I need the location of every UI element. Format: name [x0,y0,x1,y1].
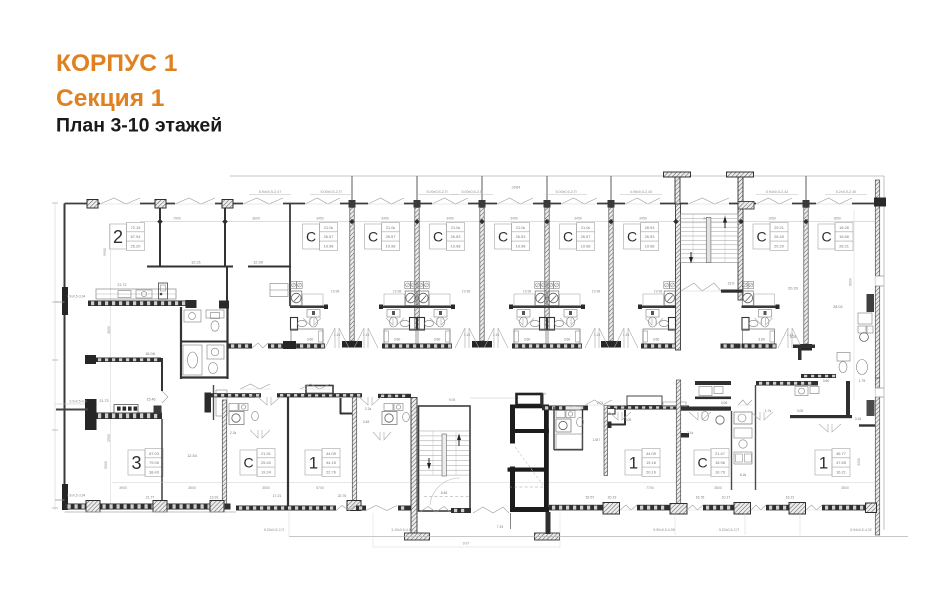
svg-text:3.60: 3.60 [434,338,441,342]
svg-text:5.94х0,5-2,42: 5.94х0,5-2,42 [766,190,789,194]
svg-text:2.1к: 2.1к [687,431,694,435]
svg-text:38.43: 38.43 [149,469,159,474]
svg-text:21.47: 21.47 [715,451,725,456]
svg-text:1950: 1950 [768,217,776,221]
svg-text:4.95х0,5-2,40: 4.95х0,5-2,40 [630,190,653,194]
svg-text:3.60: 3.60 [524,338,531,342]
svg-text:С: С [368,228,378,244]
svg-text:3.60: 3.60 [823,379,830,383]
svg-text:5.25: 5.25 [790,335,797,339]
svg-text:19.98: 19.98 [592,290,601,294]
svg-text:5700: 5700 [316,486,324,490]
svg-text:16.06: 16.06 [145,351,155,356]
svg-text:26.57: 26.57 [386,234,396,239]
svg-text:5.2х0,5-2,40: 5.2х0,5-2,40 [836,190,857,194]
svg-text:9900: 9900 [103,248,107,256]
svg-text:87.03: 87.03 [149,451,159,456]
svg-text:2: 2 [113,227,123,247]
svg-text:19.24: 19.24 [261,469,272,474]
svg-text:21.0к: 21.0к [324,225,334,230]
svg-text:5.00х0,5-2,П: 5.00х0,5-2,П [320,190,341,194]
svg-text:19.98: 19.98 [451,243,461,248]
svg-text:15.46: 15.46 [147,398,156,402]
svg-text:19.98: 19.98 [324,243,334,248]
svg-text:6.2к: 6.2к [740,473,747,477]
svg-text:26.45: 26.45 [774,234,784,239]
svg-text:3.16: 3.16 [855,417,862,421]
svg-text:План 3-10 этажей: План 3-10 этажей [56,115,222,137]
svg-text:21½: 21½ [728,282,735,286]
svg-text:22.76: 22.76 [338,494,347,498]
svg-text:72.15: 72.15 [131,225,141,230]
svg-text:21.0к: 21.0к [516,225,526,230]
svg-text:1.79: 1.79 [859,379,866,383]
svg-text:1: 1 [629,453,638,472]
svg-text:5.94х0,5-2,47: 5.94х0,5-2,47 [259,190,282,194]
svg-text:19.98: 19.98 [331,290,340,294]
svg-text:3500: 3500 [188,486,196,490]
svg-text:46.77: 46.77 [836,451,846,456]
svg-text:19.98: 19.98 [386,243,396,248]
svg-text:79.06: 79.06 [149,460,159,465]
svg-text:17.21: 17.21 [273,494,282,498]
svg-text:7700: 7700 [646,486,654,490]
svg-text:19.16: 19.16 [646,460,656,465]
svg-text:19.98: 19.98 [581,243,591,248]
svg-text:18.96: 18.96 [715,460,725,465]
svg-text:3600: 3600 [714,486,722,490]
svg-text:10.17: 10.17 [722,496,731,500]
svg-text:47.65: 47.65 [836,460,846,465]
svg-text:3.60: 3.60 [758,338,765,342]
svg-text:С: С [243,454,253,470]
svg-text:1.05: 1.05 [387,395,394,399]
svg-text:28.93: 28.93 [645,225,655,230]
svg-text:5.02х0,5-2,П: 5.02х0,5-2,П [264,528,285,532]
svg-text:2900: 2900 [107,434,111,442]
svg-text:22.76: 22.76 [326,469,336,474]
svg-text:3084: 3084 [512,185,522,190]
svg-text:26.53: 26.53 [645,234,655,239]
svg-text:20.20: 20.20 [788,286,799,291]
svg-text:5.04х0,5-4,32: 5.04х0,5-4,32 [850,528,871,532]
svg-text:16.76: 16.76 [696,496,705,500]
svg-text:7.9х0,5-3,94: 7.9х0,5-3,94 [67,494,86,498]
svg-text:29.21: 29.21 [774,225,784,230]
svg-text:3450: 3450 [381,217,389,221]
svg-text:3.60: 3.60 [307,338,314,342]
svg-text:2.01: 2.01 [597,401,604,405]
svg-text:44.09: 44.09 [646,451,656,456]
svg-text:9.97: 9.97 [463,542,470,546]
svg-text:44.09: 44.09 [326,451,336,456]
svg-text:7.9х0,5-3,94: 7.9х0,5-3,94 [67,295,86,299]
svg-text:3900: 3900 [119,486,127,490]
svg-text:21.0к: 21.0к [451,225,461,230]
svg-text:С: С [306,228,316,244]
svg-text:Секция 1: Секция 1 [56,85,164,112]
svg-text:3600: 3600 [252,217,260,221]
svg-text:5.00х0,5-2,П: 5.00х0,5-2,П [426,190,447,194]
svg-text:7.19: 7.19 [497,525,504,529]
svg-text:28.21: 28.21 [839,243,849,248]
svg-text:16.76: 16.76 [715,469,725,474]
svg-text:3.06: 3.06 [721,401,728,405]
svg-text:21.0к: 21.0к [386,225,396,230]
svg-text:3.05: 3.05 [625,418,632,422]
svg-text:19.98: 19.98 [523,290,532,294]
svg-text:21.73: 21.73 [99,399,108,403]
svg-text:1850: 1850 [833,217,841,221]
svg-text:3500: 3500 [841,486,849,490]
svg-text:С: С [821,228,831,244]
svg-text:1.05: 1.05 [249,395,256,399]
svg-text:5.00х0,5-2,П: 5.00х0,5-2,П [555,190,576,194]
svg-text:3450: 3450 [574,217,582,221]
svg-text:21.0к: 21.0к [581,225,591,230]
svg-text:С: С [433,228,443,244]
svg-text:25.20: 25.20 [131,243,142,248]
svg-text:1: 1 [819,453,828,472]
svg-text:2.2к: 2.2к [230,431,237,435]
svg-text:С: С [563,228,573,244]
svg-text:3.19х0,5-4,95: 3.19х0,5-4,95 [391,528,412,532]
svg-text:6.46: 6.46 [441,491,448,495]
svg-text:3: 3 [131,453,141,473]
svg-text:5.02х0,5-2,П: 5.02х0,5-2,П [719,528,740,532]
svg-text:С: С [697,454,707,470]
svg-text:1.6П: 1.6П [592,438,600,442]
svg-text:5.00х0,5-2,П: 5.00х0,5-2,П [461,190,482,194]
svg-text:9.90х0,5-4,95: 9.90х0,5-4,95 [653,528,674,532]
svg-text:16.21: 16.21 [786,496,795,500]
svg-text:67.94: 67.94 [131,234,142,239]
svg-text:С: С [627,228,637,244]
svg-text:26.57: 26.57 [581,234,591,239]
svg-text:44.15: 44.15 [326,460,336,465]
svg-text:26.53: 26.53 [451,234,461,239]
svg-text:С: С [498,228,508,244]
svg-text:3.45: 3.45 [363,420,370,424]
svg-text:3000: 3000 [107,326,111,334]
svg-text:3450: 3450 [510,217,518,221]
svg-text:3450: 3450 [316,217,324,221]
svg-text:26.53: 26.53 [516,234,526,239]
svg-text:12.99: 12.99 [253,260,263,265]
svg-text:25.40: 25.40 [261,460,272,465]
svg-text:1.7к: 1.7к [765,409,772,413]
svg-text:28.01: 28.01 [833,304,843,309]
svg-text:21.91: 21.91 [261,451,271,456]
svg-text:9.05: 9.05 [449,398,456,402]
svg-text:1: 1 [309,453,318,472]
svg-text:26.57: 26.57 [324,234,334,239]
svg-text:16.21: 16.21 [836,469,846,474]
svg-text:12.21: 12.21 [191,260,201,265]
svg-text:12.54: 12.54 [187,453,198,458]
svg-text:19.98: 19.98 [393,290,402,294]
svg-text:8000: 8000 [849,278,853,286]
svg-text:3.60: 3.60 [394,338,401,342]
svg-text:19.98: 19.98 [462,290,471,294]
svg-text:21.77: 21.77 [146,496,155,500]
svg-text:19.98: 19.98 [516,243,526,248]
svg-text:3450: 3450 [446,217,454,221]
svg-text:18.26: 18.26 [839,225,849,230]
svg-text:3.60: 3.60 [564,338,571,342]
svg-text:3400: 3400 [857,458,861,466]
svg-text:3.05: 3.05 [797,409,804,413]
svg-text:20.20: 20.20 [774,243,785,248]
svg-text:6.9х0,5-4,9: 6.9х0,5-4,9 [70,400,87,404]
svg-text:КОРПУС 1: КОРПУС 1 [56,50,177,77]
svg-text:5600: 5600 [104,461,108,469]
svg-text:19.98: 19.98 [654,290,663,294]
svg-text:20.19: 20.19 [646,469,656,474]
svg-text:21.72: 21.72 [117,283,126,287]
svg-text:2.2к: 2.2к [365,407,372,411]
svg-text:20.19: 20.19 [608,496,617,500]
svg-text:52.57: 52.57 [586,496,595,500]
svg-text:3500: 3500 [262,486,270,490]
svg-text:13.91: 13.91 [210,496,219,500]
svg-text:С: С [756,228,766,244]
svg-text:3.60: 3.60 [653,338,660,342]
svg-text:19.98: 19.98 [645,243,655,248]
svg-text:3450: 3450 [639,217,647,221]
svg-text:15.66: 15.66 [839,234,849,239]
svg-text:7900: 7900 [173,217,181,221]
